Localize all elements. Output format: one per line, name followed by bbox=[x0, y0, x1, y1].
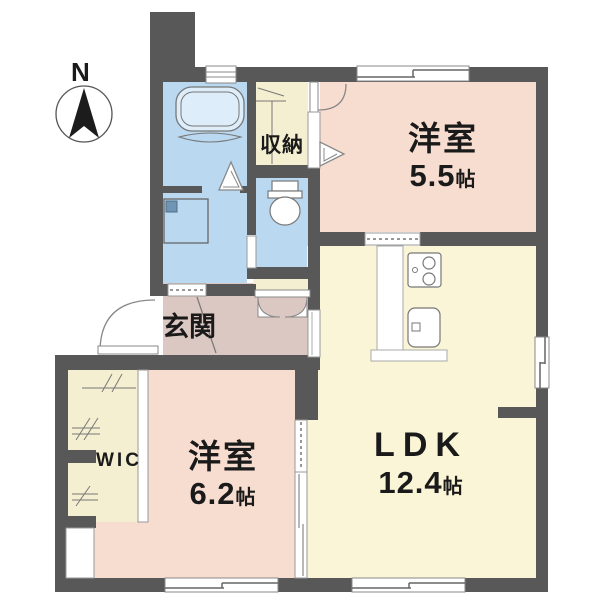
window-bedroom2-bottom bbox=[165, 578, 278, 592]
toilet-door bbox=[247, 236, 256, 268]
bedroom2-name: 洋室 bbox=[113, 438, 333, 476]
corner-closet bbox=[66, 528, 94, 578]
window-bathroom bbox=[206, 66, 236, 83]
washing-machine-pan bbox=[164, 199, 208, 243]
bedroom1-label: 洋室 5.5帖 bbox=[333, 120, 553, 194]
window-ldk-right bbox=[535, 337, 549, 388]
ldk-name: LDK bbox=[311, 426, 531, 465]
bedroom1-size: 5.5帖 bbox=[333, 158, 553, 194]
toilet-fixture bbox=[268, 181, 302, 225]
shoe-cabinet bbox=[255, 290, 310, 317]
bedroom2-size: 6.2帖 bbox=[113, 476, 333, 512]
storage-label: 収納 bbox=[252, 134, 312, 158]
floor-plan: N 洋室 5.5帖 LDK 12.4帖 洋室 6.2帖 玄関 収納 WIC bbox=[0, 0, 600, 600]
window-ldk-bottom bbox=[352, 578, 465, 592]
entrance-label: 玄関 bbox=[162, 312, 216, 343]
bedroom1-door bbox=[310, 82, 346, 112]
bathtub bbox=[176, 87, 244, 142]
north-compass-icon bbox=[56, 86, 112, 142]
bedroom2-label: 洋室 6.2帖 bbox=[113, 438, 333, 512]
ldk-size: 12.4帖 bbox=[311, 465, 531, 501]
wic-label: WIC bbox=[96, 450, 142, 472]
stove bbox=[408, 253, 441, 287]
bedroom1-ldk-door bbox=[365, 233, 420, 245]
washroom-door bbox=[168, 284, 206, 296]
north-label: N bbox=[71, 58, 90, 88]
bedroom1-name: 洋室 bbox=[333, 120, 553, 158]
ldk-label: LDK 12.4帖 bbox=[311, 426, 531, 501]
window-bedroom1-top bbox=[357, 66, 469, 81]
sink bbox=[408, 308, 440, 347]
entrance-ldk-door bbox=[308, 310, 320, 357]
entrance-door bbox=[98, 300, 158, 354]
bath-folding-door bbox=[219, 162, 243, 190]
